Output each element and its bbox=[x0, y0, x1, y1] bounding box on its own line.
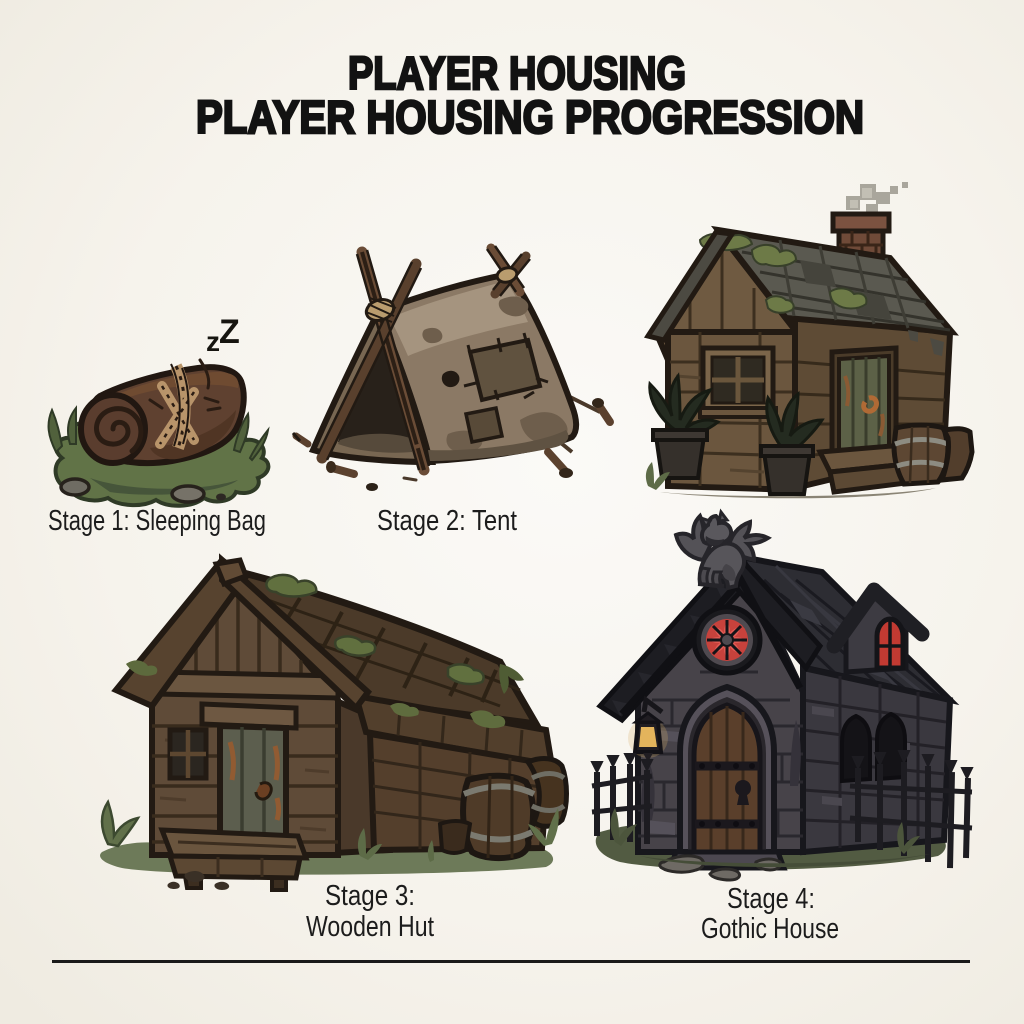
svg-text:Wooden Hut: Wooden Hut bbox=[306, 911, 434, 943]
svg-text:PLAYER HOUSING PROGRESSION: PLAYER HOUSING PROGRESSION bbox=[196, 91, 864, 143]
svg-text:Stage 1: Sleeping Bag: Stage 1: Sleeping Bag bbox=[48, 505, 266, 537]
svg-text:Gothic House: Gothic House bbox=[701, 913, 839, 945]
svg-text:Stage 4:: Stage 4: bbox=[727, 883, 815, 915]
svg-text:Stage 2: Tent: Stage 2: Tent bbox=[377, 505, 517, 537]
svg-text:z: z bbox=[206, 326, 220, 357]
svg-text:Stage 3:: Stage 3: bbox=[325, 880, 415, 912]
svg-text:Z: Z bbox=[219, 313, 240, 351]
